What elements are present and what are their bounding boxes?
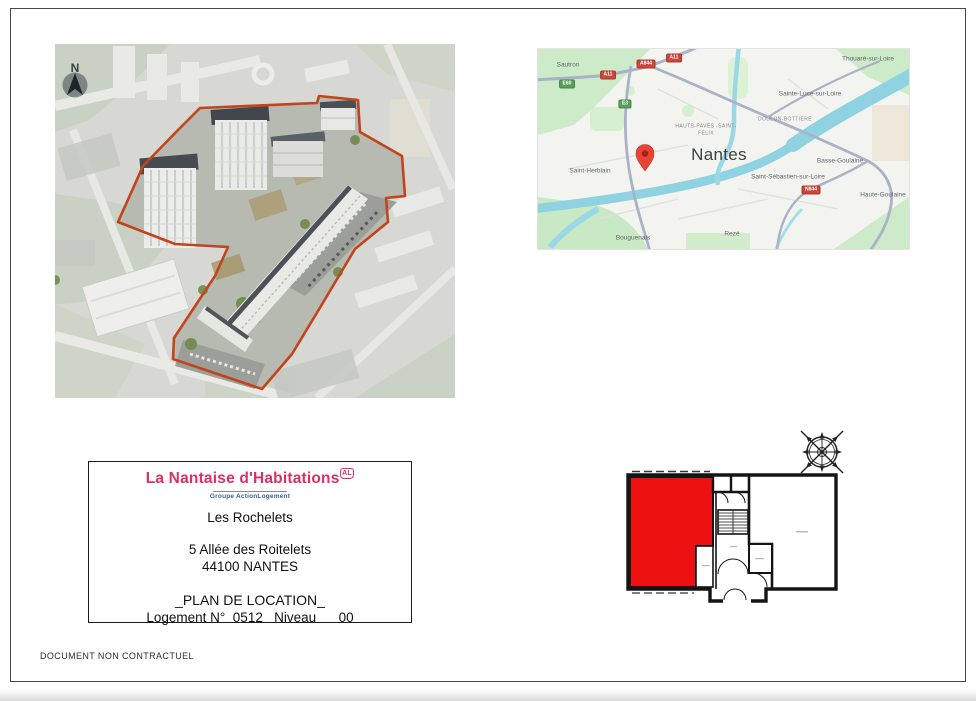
map-town-label: Sautron <box>557 62 580 69</box>
address: 5 Allée des Roitelets 44100 NANTES <box>89 542 411 576</box>
road-badge: E60 <box>559 80 575 89</box>
map-town-label: Bouguenais <box>616 235 650 242</box>
map-town-label: Saint-Sébastien-sur-Loire <box>751 174 825 181</box>
floor-plan-graphic <box>620 470 856 610</box>
plan-de-location-page: N <box>0 0 976 701</box>
tower-building-center <box>211 106 270 190</box>
map-town-label: Saint-Herblain <box>569 168 610 175</box>
footer-disclaimer: DOCUMENT NON CONTRACTUEL <box>40 651 194 661</box>
page-bottom-shadow <box>0 689 976 701</box>
small-building-topright <box>320 100 357 130</box>
city-map: Sautron Saint-Herblain Bouguenais Rezé T… <box>537 48 910 250</box>
actionlogement-logo-icon: AL <box>340 468 355 479</box>
address-line2: 44100 NANTES <box>89 559 411 576</box>
map-town-label: Sainte-Luce-sur-Loire <box>779 91 842 98</box>
aerial-photo-graphic: N <box>55 44 455 398</box>
map-city-label: Nantes <box>691 145 747 165</box>
floor-plan <box>620 470 856 610</box>
road-badge: N844 <box>802 186 821 195</box>
road-badge: A11 <box>666 54 682 63</box>
map-town-label: Haute-Goulaine <box>860 192 906 199</box>
map-town-label: Basse-Goulaine <box>817 158 863 165</box>
road-badge: A844 <box>637 60 656 69</box>
map-town-label: Thouaré-sur-Loire <box>842 56 894 63</box>
map-district-label: HAUTS-PAVÉS -SAINT-FÉLIX <box>671 123 741 137</box>
road-badge: E3 <box>618 100 631 109</box>
org-name: La Nantaise d'HabitationsAL <box>89 470 411 488</box>
north-label: N <box>71 61 80 75</box>
org-rule <box>213 491 287 492</box>
org-group: Groupe ActionLogement <box>89 493 411 500</box>
compass-rose-icon <box>798 428 846 476</box>
title-block: La Nantaise d'HabitationsAL Groupe Actio… <box>88 461 412 623</box>
residence-name: Les Rochelets <box>89 510 411 525</box>
midrise-building <box>271 131 326 177</box>
map-district-label: DOULON-BOTTIÈRE <box>750 117 820 124</box>
aerial-photo: N <box>55 44 455 398</box>
road-badge: A11 <box>600 71 616 80</box>
unit-number-line: Logement N° 0512 Niveau 00 <box>89 610 411 625</box>
address-line1: 5 Allée des Roitelets <box>89 542 411 559</box>
map-town-label: Rezé <box>724 231 739 238</box>
plan-title: _PLAN DE LOCATION_ <box>89 592 411 608</box>
